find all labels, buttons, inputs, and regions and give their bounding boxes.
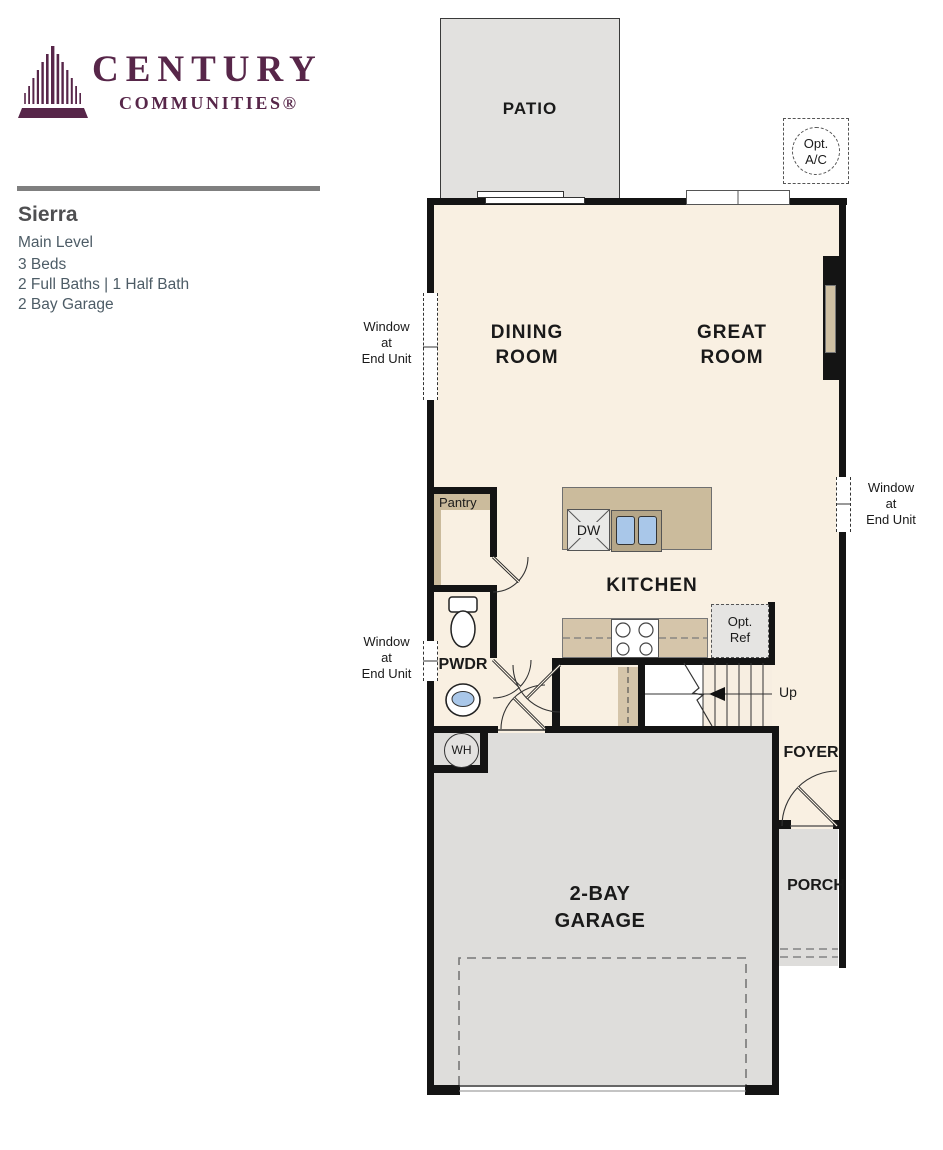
century-communities-logo-icon bbox=[18, 40, 88, 124]
wall-pwdr-right bbox=[490, 592, 497, 658]
brand-subname: COMMUNITIES® bbox=[119, 93, 299, 114]
window-note-dining: Window at End Unit bbox=[349, 319, 424, 367]
wall-counter-back bbox=[552, 658, 775, 665]
wall-garage-bottom-left bbox=[427, 1085, 460, 1095]
stair-understair bbox=[645, 663, 703, 726]
wall-garage-right bbox=[772, 726, 779, 1092]
end-unit-window-great bbox=[836, 477, 851, 532]
kitchen-label: KITCHEN bbox=[592, 573, 712, 598]
wall-stair-left bbox=[638, 663, 645, 733]
sink-basin-left bbox=[616, 516, 635, 545]
brand-name: CENTURY bbox=[92, 48, 323, 91]
plan-garage: 2 Bay Garage bbox=[18, 296, 114, 314]
porch-label: PORCH bbox=[781, 877, 851, 895]
stair-treads-bg bbox=[703, 663, 772, 726]
wall-garage-bottom-right bbox=[745, 1085, 779, 1095]
plan-name: Sierra bbox=[18, 203, 78, 227]
stove bbox=[611, 619, 659, 658]
dw-label: DW bbox=[567, 522, 610, 538]
wall-optref-right bbox=[768, 602, 775, 665]
wall-pantry-right bbox=[490, 487, 497, 557]
plan-beds: 3 Beds bbox=[18, 256, 66, 274]
wall-foyer-door-left bbox=[779, 820, 791, 829]
up-label: Up bbox=[779, 684, 809, 700]
great-room-label: GREAT ROOM bbox=[662, 320, 802, 370]
pantry-label: Pantry bbox=[439, 495, 489, 511]
window-note-pwdr: Window at End Unit bbox=[349, 634, 424, 682]
floorplan-sheet: CENTURY COMMUNITIES® Sierra Main Level 3… bbox=[0, 0, 943, 1150]
end-unit-window-dining bbox=[423, 293, 438, 400]
divider-rule bbox=[17, 186, 320, 191]
foyer-label: FOYER bbox=[776, 744, 846, 762]
wall-garage-top-right bbox=[545, 726, 779, 733]
sliding-door-panel-inner bbox=[485, 197, 585, 204]
wall-foyer-door-right bbox=[833, 820, 846, 829]
wall-hall-right bbox=[552, 660, 560, 733]
opt-ref-label: Opt. Ref bbox=[711, 614, 769, 646]
wall-pantry-top bbox=[427, 487, 497, 494]
dining-room-label: DINING ROOM bbox=[457, 320, 597, 370]
stair-half-wall bbox=[618, 667, 639, 726]
wh-label: WH bbox=[444, 743, 479, 757]
media-niche bbox=[825, 285, 836, 353]
wall-wh-right bbox=[480, 733, 488, 773]
wall-pwdr-top bbox=[427, 585, 497, 592]
pwdr-label: PWDR bbox=[428, 656, 498, 674]
sink-basin-right bbox=[638, 516, 657, 545]
plan-level: Main Level bbox=[18, 234, 93, 252]
wall-right bbox=[839, 198, 846, 968]
patio-label: PATIO bbox=[480, 99, 580, 119]
great-room-window bbox=[686, 190, 790, 205]
opt-ac-label: Opt. A/C bbox=[783, 136, 849, 168]
porch-area bbox=[779, 829, 838, 966]
plan-baths: 2 Full Baths | 1 Half Bath bbox=[18, 276, 189, 294]
wall-garage-top-left bbox=[427, 726, 498, 733]
garage-label: 2-BAY GARAGE bbox=[517, 881, 683, 935]
window-note-great: Window at End Unit bbox=[855, 480, 927, 528]
